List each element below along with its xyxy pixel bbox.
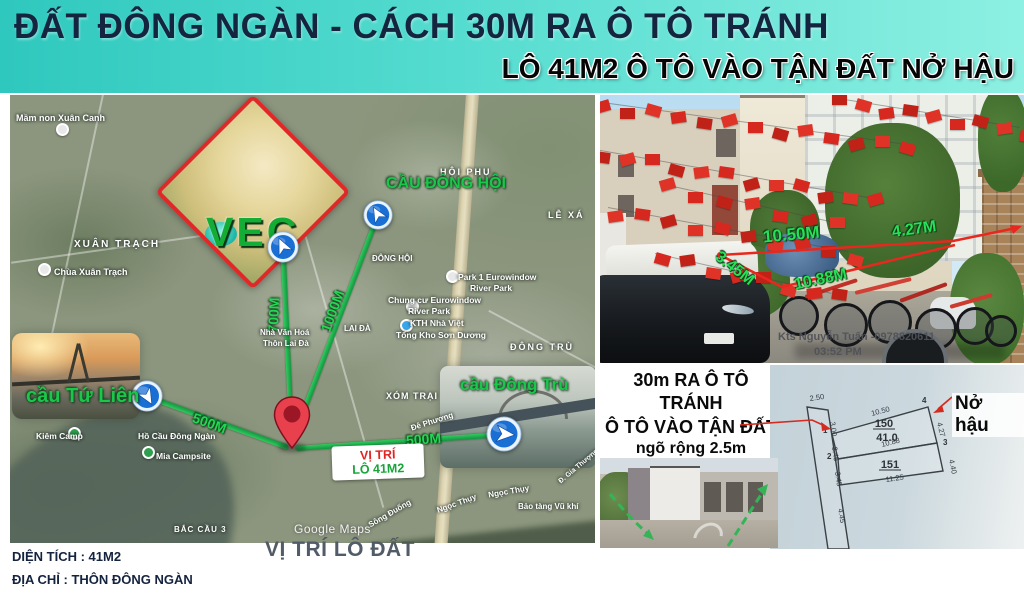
map-place-label: Chùa Xuân Trạch [54, 267, 128, 277]
map-place-label: LỄ XÁ [548, 210, 585, 220]
corner-number: 4 [922, 396, 927, 405]
map-place-label: Bảo tàng Vũ khí [518, 502, 578, 511]
map-place-label: Mia Campsite [156, 451, 211, 461]
red-flag [832, 95, 847, 105]
bicycle-wheel [779, 296, 819, 336]
real-estate-flyer: ĐẤT ĐÔNG NGÀN - CÁCH 30M RA Ô TÔ TRÁNH L… [0, 0, 1024, 601]
map-place-label: Kiêm Camp [36, 431, 83, 441]
red-flag [634, 208, 650, 221]
map-place-label: ĐÔNG HỘI [372, 254, 412, 263]
map-place-label: Mầm non Xuân Canh [16, 113, 105, 123]
red-flag [607, 210, 623, 223]
note-line3: ngõ rộng 2.5m [603, 439, 779, 460]
area-info: DIỆN TÍCH : 41M2 [12, 549, 121, 564]
access-note: 30m RA Ô TÔ TRÁNH Ô TÔ VÀO TẬN ĐẤT ngõ r… [603, 369, 779, 460]
satellite-map: VEC 700M1000M500M500M Mầm non Xuân CanhX… [10, 95, 595, 543]
map-place-label: BẮC CẦU 3 [174, 525, 227, 534]
google-maps-watermark: Google Maps [294, 522, 371, 536]
red-flag [748, 122, 763, 133]
bridge-name-label: cầu Đông Trù [460, 375, 569, 395]
route-arrows [600, 458, 778, 548]
red-flag [818, 191, 834, 204]
red-flag [744, 197, 760, 210]
map-place-label: Hồ Cầu Đông Ngàn [138, 431, 215, 441]
corner-number: 1 [823, 426, 828, 435]
parcel-150-label: 150 [875, 418, 893, 430]
red-flag [773, 210, 789, 223]
red-flag [1019, 130, 1024, 143]
red-flag [950, 119, 965, 130]
map-place-label: River Park [470, 283, 512, 293]
dimension-label: 2.50 [809, 392, 825, 403]
red-flag [600, 151, 611, 164]
navigation-arrow-icon [486, 416, 522, 452]
vines-top-right [978, 95, 1024, 192]
navigation-arrow-icon [267, 231, 299, 263]
banner: ĐẤT ĐÔNG NGÀN - CÁCH 30M RA Ô TÔ TRÁNH L… [0, 0, 1024, 93]
dimension-label: 4.40 [947, 459, 959, 475]
red-flag [902, 104, 918, 117]
map-place-label: Nhà Văn Hoá [260, 328, 309, 337]
map-place-label: LAI ĐÀ [344, 324, 371, 333]
street-photo [600, 458, 778, 548]
poi-marker-icon [56, 123, 69, 136]
location-pin-icon [272, 395, 312, 451]
callout-line1: VỊ TRÍ [360, 447, 396, 463]
map-place-label: Thôn Lai Đà [263, 339, 309, 348]
map-place-label: Park 1 Eurowindow [458, 272, 536, 282]
license-plate [704, 333, 734, 344]
note-line2: Ô TÔ VÀO TẬN ĐẤT [603, 416, 779, 439]
note-line1: 30m RA Ô TÔ TRÁNH [603, 369, 779, 416]
photo-watermark-time: 03:52 PM [814, 346, 862, 358]
bridge-name-label: cầu Tứ Liên [26, 385, 139, 408]
map-place-label: Tổng Kho Sơn Dương [396, 330, 486, 340]
red-flag [694, 166, 710, 179]
red-flag [821, 246, 836, 257]
red-flag [620, 108, 635, 119]
red-flag [842, 192, 858, 205]
address-info: ĐỊA CHỈ : THÔN ĐÔNG NGÀN [12, 572, 193, 587]
red-flag [769, 180, 784, 191]
dimension-label: 10.50 [870, 404, 890, 418]
dimension-label: 11.25 [885, 473, 904, 484]
navigation-arrow-icon [363, 200, 393, 230]
corner-number: 3 [943, 438, 948, 447]
dimension-label: 4.27 [935, 421, 947, 437]
map-place-label: ĐÔNG TRÙ [510, 342, 574, 352]
red-flag [671, 111, 687, 124]
map-place-label: XUÂN TRẠCH [74, 239, 160, 250]
alley-photo: 10.50M4.27M3.45M10.88M Kts Nguyễn Tuấn -… [600, 95, 1024, 363]
red-flag [823, 132, 839, 145]
banner-title: ĐẤT ĐÔNG NGÀN - CÁCH 30M RA Ô TÔ TRÁNH [14, 7, 829, 47]
red-flag [688, 225, 703, 236]
map-place-label: XÓM TRẠI [386, 391, 438, 401]
red-flag [645, 154, 660, 165]
red-flag [688, 192, 703, 203]
poi-marker-icon [38, 263, 51, 276]
window [716, 129, 736, 157]
map-place-label: Chung cư Eurowindow [388, 295, 481, 305]
bicycle-wheel [985, 315, 1017, 347]
bridge-pylon [77, 343, 90, 383]
corner-number: 2 [827, 452, 832, 461]
red-flag [718, 166, 734, 179]
callout-line2: LÔ 41M2 [352, 461, 405, 477]
bridge-name-label: CẦU ĐÔNG HỘI [386, 175, 506, 193]
parcel-151-label: 151 [881, 459, 899, 471]
banner-subtitle: LÔ 41M2 Ô TÔ VÀO TẬN ĐẤT NỞ HẬU [502, 53, 1014, 85]
red-flag [996, 122, 1012, 135]
map-place-label: KTH Nhà Việt [410, 318, 464, 328]
red-flag [680, 254, 696, 267]
map-place-label: River Park [408, 306, 450, 316]
red-flag [875, 136, 890, 147]
bottom-right-section: 30m RA Ô TÔ TRÁNH Ô TÔ VÀO TẬN ĐẤT ngõ r… [600, 365, 1024, 549]
red-flag [756, 272, 771, 283]
plot-location-callout: VỊ TRÍ LÔ 41M2 [331, 443, 424, 480]
red-flag [830, 217, 845, 228]
poi-marker-icon [142, 446, 155, 459]
photo-watermark-author: Kts Nguyễn Tuấn -0978820611 [778, 331, 935, 343]
no-hau-label: Nở hậu [952, 393, 1024, 437]
red-flag [831, 288, 847, 301]
